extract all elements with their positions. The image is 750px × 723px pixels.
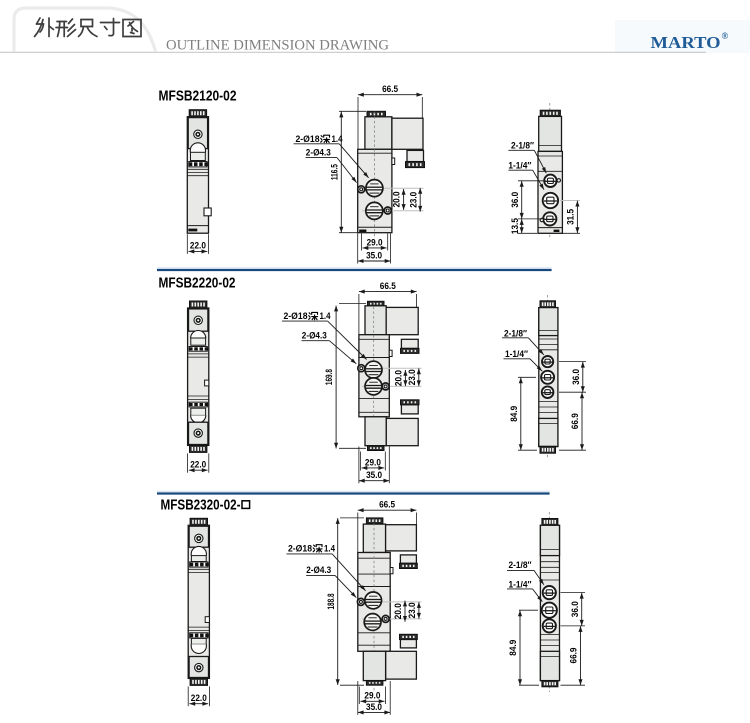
svg-text:MARTO: MARTO xyxy=(651,33,721,52)
svg-text:116.5: 116.5 xyxy=(329,164,340,180)
svg-text:35.0: 35.0 xyxy=(366,250,382,261)
svg-text:66.5: 66.5 xyxy=(380,281,397,292)
svg-text:22.0: 22.0 xyxy=(190,459,206,470)
svg-text:13.5: 13.5 xyxy=(510,217,521,234)
svg-text:35.0: 35.0 xyxy=(366,702,382,713)
svg-text:66.5: 66.5 xyxy=(382,84,399,95)
svg-text:84.9: 84.9 xyxy=(508,640,519,656)
svg-text:20.0: 20.0 xyxy=(392,191,403,207)
svg-text:22.0: 22.0 xyxy=(191,693,207,704)
svg-text:188.8: 188.8 xyxy=(326,594,337,610)
svg-text:OUTLINE DIMENSION DRAWING: OUTLINE DIMENSION DRAWING xyxy=(166,38,390,54)
svg-text:29.0: 29.0 xyxy=(365,457,381,468)
svg-text:®: ® xyxy=(722,31,729,41)
svg-text:2-Ø4.3: 2-Ø4.3 xyxy=(306,565,331,576)
svg-text:36.0: 36.0 xyxy=(571,369,582,385)
svg-text:MFSB2320-02-: MFSB2320-02- xyxy=(161,497,241,514)
svg-text:169.8: 169.8 xyxy=(324,369,335,385)
svg-text:23.0: 23.0 xyxy=(407,602,418,618)
svg-text:MFSB2120-02: MFSB2120-02 xyxy=(159,88,237,105)
svg-text:84.9: 84.9 xyxy=(509,406,520,422)
svg-text:31.5: 31.5 xyxy=(566,208,577,225)
svg-text:2-1/8″: 2-1/8″ xyxy=(509,560,532,571)
svg-text:66.9: 66.9 xyxy=(570,413,581,429)
svg-text:36.0: 36.0 xyxy=(510,192,521,208)
svg-text:2-Ø18: 2-Ø18 xyxy=(284,311,308,322)
svg-text:20.0: 20.0 xyxy=(393,603,404,619)
svg-text:20.0: 20.0 xyxy=(394,370,405,386)
svg-text:23.0: 23.0 xyxy=(408,192,419,208)
svg-text:1.4: 1.4 xyxy=(320,311,332,322)
svg-text:2-Ø18: 2-Ø18 xyxy=(288,544,312,555)
svg-text:2-Ø4.3: 2-Ø4.3 xyxy=(302,331,327,342)
svg-text:36.0: 36.0 xyxy=(570,601,581,617)
svg-text:MFSB2220-02: MFSB2220-02 xyxy=(159,275,236,292)
svg-text:23.0: 23.0 xyxy=(407,369,418,385)
svg-text:66.5: 66.5 xyxy=(379,500,396,511)
svg-text:29.0: 29.0 xyxy=(367,237,383,248)
svg-text:29.0: 29.0 xyxy=(364,691,380,702)
svg-text:22.0: 22.0 xyxy=(190,241,206,252)
svg-text:35.0: 35.0 xyxy=(366,470,382,481)
svg-text:66.9: 66.9 xyxy=(569,648,580,664)
svg-text:1.4: 1.4 xyxy=(324,544,336,555)
